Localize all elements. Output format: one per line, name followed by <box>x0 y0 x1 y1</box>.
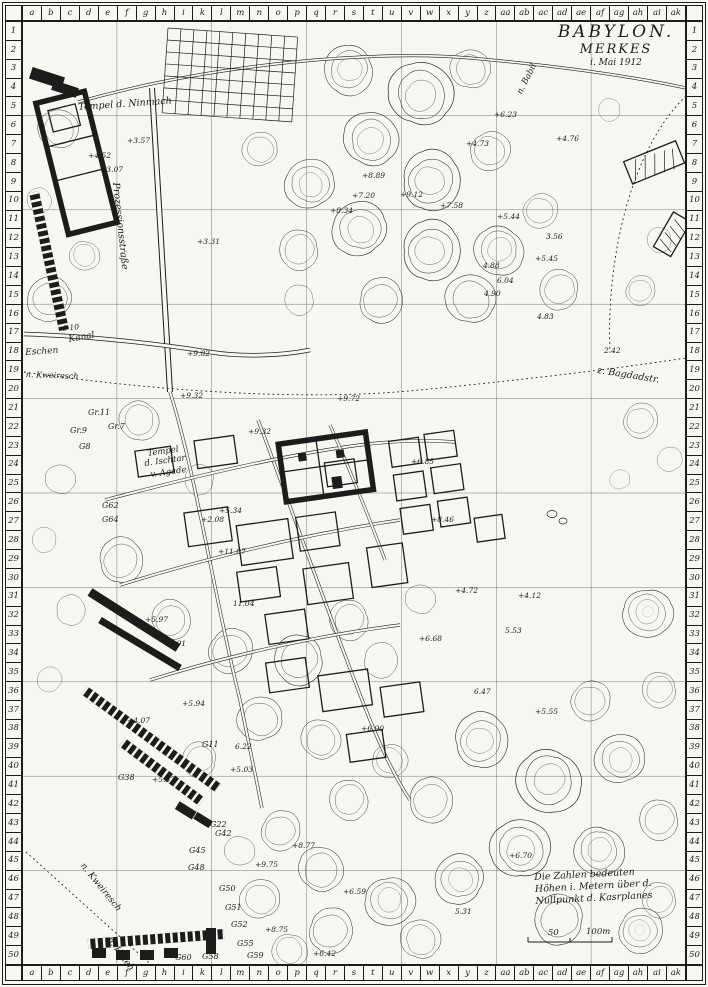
grid-number-cell: 28 <box>687 530 702 549</box>
grid-number-cell: 11 <box>687 210 702 229</box>
grid-letter-cell: t <box>363 6 382 20</box>
grid-letter-cell: a <box>23 6 41 20</box>
grid-number-cell: 35 <box>687 662 702 681</box>
spot-height: 11.04 <box>233 600 254 608</box>
grid-letter-cell: r <box>325 6 344 20</box>
grid-letter-cell: ab <box>514 966 533 980</box>
corner-cell <box>686 965 703 981</box>
spot-height: +7.58 <box>440 202 463 210</box>
scale-label-100m: 100m <box>586 928 610 937</box>
grid-number-cell: 4 <box>687 78 702 97</box>
grid-number-cell: 16 <box>6 304 21 323</box>
grid-number-cell: 18 <box>6 342 21 361</box>
scale-label-50: 50 <box>548 929 559 938</box>
grid-letter-cell: h <box>155 966 174 980</box>
grid-number-cell: 45 <box>6 851 21 870</box>
grid-number-cell: 46 <box>687 870 702 889</box>
trench-label: G38 <box>118 774 135 782</box>
grid-number-cell: 6 <box>6 115 21 134</box>
spot-height: +5.55 <box>535 708 558 716</box>
grid-letter-cell: s <box>344 966 363 980</box>
grid-letter-cell: y <box>458 6 477 20</box>
grid-number-cell: 32 <box>6 606 21 625</box>
spot-height: +5.44 <box>497 213 520 221</box>
spot-height: +6.90 <box>361 725 384 733</box>
grid-letter-cell: ai <box>647 6 666 20</box>
trench-label: G60 <box>175 954 192 962</box>
grid-number-cell: 33 <box>687 625 702 644</box>
grid-number-cell: 36 <box>6 681 21 700</box>
grid-number-cell: 39 <box>6 738 21 757</box>
trench-label: G50 <box>219 885 236 893</box>
grid-number-cell: 11 <box>6 210 21 229</box>
inner-frame <box>22 21 686 965</box>
grid-number-cell: 14 <box>6 266 21 285</box>
spot-height: 4.90 <box>484 290 501 298</box>
grid-number-cell: 4 <box>6 78 21 97</box>
spot-height: 5.31 <box>455 908 472 916</box>
grid-number-cell: 6 <box>687 115 702 134</box>
spot-height: 4.88 <box>483 262 500 270</box>
trench-label: G58 <box>202 953 219 961</box>
grid-number-cell: 19 <box>6 360 21 379</box>
trench-label: Gr.9 <box>70 427 87 435</box>
grid-number-cell: 10 <box>6 191 21 210</box>
grid-number-cell: 33 <box>6 625 21 644</box>
corner-cell <box>5 965 22 981</box>
grid-letter-cell: r <box>325 966 344 980</box>
grid-number-cell: 41 <box>687 775 702 794</box>
grid-number-cell: 5 <box>6 96 21 115</box>
grid-number-cell: 31 <box>6 587 21 606</box>
grid-number-cell: 25 <box>6 474 21 493</box>
grid-number-cell: 15 <box>687 285 702 304</box>
spot-height: +4.07 <box>127 717 150 725</box>
grid-letters-bottom: abcdefghiklmnopqrstuvwxyzaaabacadaeafaga… <box>22 965 686 981</box>
grid-letter-cell: z <box>477 966 496 980</box>
grid-letter-cell: c <box>60 6 79 20</box>
spot-height: +2.08 <box>201 516 224 524</box>
grid-number-cell: 30 <box>687 568 702 587</box>
corner-cell <box>686 5 703 21</box>
grid-number-cell: 43 <box>687 813 702 832</box>
grid-letter-cell: o <box>268 966 287 980</box>
trench-label: Gr.11 <box>88 409 110 417</box>
map-sheet: abcdefghiklmnopqrstuvwxyzaaabacadaeafaga… <box>0 0 708 987</box>
grid-number-cell: 47 <box>6 889 21 908</box>
trench-label: G55 <box>237 940 254 948</box>
grid-number-cell: 47 <box>687 889 702 908</box>
grid-number-cell: 50 <box>6 945 21 964</box>
spot-height: 6.04 <box>497 277 514 285</box>
grid-letter-cell: w <box>420 966 439 980</box>
grid-number-cell: 24 <box>687 455 702 474</box>
spot-height: +4.52 <box>88 152 111 160</box>
grid-number-cell: 7 <box>687 134 702 153</box>
map-title-main: BABYLON. <box>540 22 692 42</box>
grid-letter-cell: x <box>439 6 458 20</box>
grid-number-cell: 42 <box>687 794 702 813</box>
grid-number-cell: 40 <box>687 757 702 776</box>
grid-number-cell: 25 <box>687 474 702 493</box>
spot-height: 6.22 <box>235 743 252 751</box>
grid-number-cell: 27 <box>6 511 21 530</box>
grid-letter-cell: ac <box>533 6 552 20</box>
map-title-sub: MERKES <box>540 42 692 57</box>
grid-letter-cell: z <box>477 6 496 20</box>
corner-cell <box>5 5 22 21</box>
grid-number-cell: 35 <box>6 662 21 681</box>
spot-height: +9.32 <box>180 392 203 400</box>
grid-letter-cell: ac <box>533 966 552 980</box>
grid-letter-cell: l <box>211 6 230 20</box>
grid-number-cell: 48 <box>6 907 21 926</box>
grid-number-cell: 8 <box>687 153 702 172</box>
grid-number-cell: 10 <box>687 191 702 210</box>
grid-number-cell: 26 <box>6 492 21 511</box>
spot-height: 2.42 <box>604 347 621 355</box>
grid-number-cell: 26 <box>687 492 702 511</box>
spot-height: +8.89 <box>362 172 385 180</box>
spot-height: +3.07 <box>100 166 123 174</box>
trench-label: G59 <box>247 952 264 960</box>
grid-number-cell: 20 <box>6 379 21 398</box>
grid-letter-cell: p <box>287 966 306 980</box>
grid-number-cell: 43 <box>6 813 21 832</box>
spot-height: +8.46 <box>431 516 454 524</box>
spot-height: +9.12 <box>400 191 423 199</box>
spot-height: +8.34 <box>330 207 353 215</box>
grid-letter-cell: i <box>174 966 193 980</box>
grid-letter-cell: u <box>382 966 401 980</box>
grid-letter-cell: u <box>382 6 401 20</box>
grid-number-cell: 17 <box>687 323 702 342</box>
grid-letter-cell: ae <box>571 966 590 980</box>
spot-height: +9.82 <box>187 350 210 358</box>
grid-letters-top: abcdefghiklmnopqrstuvwxyzaaabacadaeafaga… <box>22 5 686 21</box>
grid-number-cell: 36 <box>687 681 702 700</box>
grid-number-cell: 37 <box>687 700 702 719</box>
grid-letter-cell: b <box>41 6 60 20</box>
grid-letter-cell: l <box>211 966 230 980</box>
spot-height: +9.75 <box>255 861 278 869</box>
grid-letter-cell: t <box>363 966 382 980</box>
grid-number-cell: 23 <box>6 436 21 455</box>
grid-number-cell: 5 <box>687 96 702 115</box>
grid-number-cell: 14 <box>687 266 702 285</box>
trench-label: G42 <box>215 830 232 838</box>
trench-label: G48 <box>188 864 205 872</box>
trench-label: G52 <box>231 921 248 929</box>
grid-number-cell: 46 <box>6 870 21 889</box>
grid-number-cell: 30 <box>6 568 21 587</box>
trench-label: G11 <box>202 741 219 749</box>
grid-number-cell: 13 <box>6 247 21 266</box>
grid-numbers-right: 1234567891011121314151617181920212223242… <box>686 21 703 965</box>
grid-letter-cell: o <box>268 6 287 20</box>
spot-height: +8.77 <box>292 842 315 850</box>
grid-number-cell: 21 <box>6 398 21 417</box>
spot-height: 6.47 <box>474 688 491 696</box>
grid-letter-cell: ah <box>628 966 647 980</box>
grid-number-cell: 44 <box>687 832 702 851</box>
grid-letter-cell: s <box>344 6 363 20</box>
spot-height: +3.31 <box>197 238 220 246</box>
grid-letter-cell: m <box>230 6 249 20</box>
grid-letter-cell: d <box>79 6 98 20</box>
grid-number-cell: 32 <box>687 606 702 625</box>
grid-number-cell: 28 <box>6 530 21 549</box>
spot-height: +5.03 <box>230 766 253 774</box>
grid-number-cell: 15 <box>6 285 21 304</box>
spot-height: +7.20 <box>352 192 375 200</box>
spot-height: +5.45 <box>535 255 558 263</box>
grid-letter-cell: g <box>136 966 155 980</box>
grid-letter-cell: p <box>287 6 306 20</box>
trench-label: G51 <box>225 904 242 912</box>
grid-number-cell: 31 <box>687 587 702 606</box>
spot-height: +3.57 <box>127 137 150 145</box>
grid-number-cell: 12 <box>6 228 21 247</box>
grid-number-cell: 50 <box>687 945 702 964</box>
grid-number-cell: 48 <box>687 907 702 926</box>
grid-letter-cell: h <box>155 6 174 20</box>
spot-height: +6.68 <box>419 635 442 643</box>
grid-letter-cell: m <box>230 966 249 980</box>
grid-number-cell: 49 <box>6 926 21 945</box>
grid-number-cell: 34 <box>6 643 21 662</box>
grid-numbers-left: 1234567891011121314151617181920212223242… <box>5 21 22 965</box>
grid-number-cell: 34 <box>687 643 702 662</box>
grid-letter-cell: c <box>60 966 79 980</box>
grid-letter-cell: ad <box>552 966 571 980</box>
grid-number-cell: 3 <box>6 59 21 78</box>
grid-number-cell: 38 <box>6 719 21 738</box>
spot-height: +8.75 <box>265 926 288 934</box>
grid-number-cell: 8 <box>6 153 21 172</box>
grid-number-cell: 24 <box>6 455 21 474</box>
grid-letter-cell: ak <box>666 966 685 980</box>
place-label: 6·10 <box>62 323 79 332</box>
grid-number-cell: 9 <box>687 172 702 191</box>
grid-number-cell: 39 <box>687 738 702 757</box>
trench-label: G62 <box>102 502 119 510</box>
grid-letter-cell: a <box>23 966 41 980</box>
spot-height: +6.70 <box>509 852 532 860</box>
grid-letter-cell: q <box>306 966 325 980</box>
spot-height: +4.73 <box>466 140 489 148</box>
grid-number-cell: 23 <box>687 436 702 455</box>
spot-height: +6.23 <box>494 111 517 119</box>
grid-number-cell: 9 <box>6 172 21 191</box>
grid-letter-cell: v <box>401 966 420 980</box>
grid-number-cell: 40 <box>6 757 21 776</box>
trench-label: G22 <box>210 821 227 829</box>
spot-height: +4.76 <box>556 135 579 143</box>
trench-label: G45 <box>189 847 206 855</box>
grid-letter-cell: k <box>192 966 211 980</box>
grid-number-cell: 49 <box>687 926 702 945</box>
grid-number-cell: 22 <box>6 417 21 436</box>
grid-letter-cell: i <box>174 6 193 20</box>
grid-letter-cell: e <box>98 966 117 980</box>
grid-number-cell: 29 <box>6 549 21 568</box>
grid-number-cell: 42 <box>6 794 21 813</box>
grid-letter-cell: ab <box>514 6 533 20</box>
grid-letter-cell: aa <box>495 966 514 980</box>
grid-number-cell: 38 <box>687 719 702 738</box>
grid-letter-cell: ag <box>609 966 628 980</box>
grid-letter-cell: aa <box>495 6 514 20</box>
grid-letter-cell: ah <box>628 6 647 20</box>
grid-number-cell: 21 <box>687 398 702 417</box>
grid-number-cell: 37 <box>6 700 21 719</box>
grid-letter-cell: v <box>401 6 420 20</box>
grid-number-cell: 44 <box>6 832 21 851</box>
spot-height: +5.34 <box>219 507 242 515</box>
trench-label: G64 <box>102 516 119 524</box>
grid-number-cell: 17 <box>6 323 21 342</box>
grid-number-cell: 20 <box>687 379 702 398</box>
grid-letter-cell: ae <box>571 6 590 20</box>
grid-letter-cell: ad <box>552 6 571 20</box>
grid-letter-cell: q <box>306 6 325 20</box>
spot-height: 5.53 <box>505 627 522 635</box>
grid-number-cell: 27 <box>687 511 702 530</box>
spot-height: +5.37 <box>152 776 175 784</box>
spot-height: +11.07 <box>218 548 246 556</box>
grid-number-cell: 2 <box>6 40 21 59</box>
spot-height: 4.83 <box>537 313 554 321</box>
spot-height: +4.12 <box>518 592 541 600</box>
spot-height: +6.91 <box>163 640 186 648</box>
grid-letter-cell: ag <box>609 6 628 20</box>
spot-height: +5.94 <box>182 700 205 708</box>
legend: Die Zahlen bedeuten Höhen i. Metern über… <box>534 866 653 908</box>
grid-number-cell: 19 <box>687 360 702 379</box>
grid-letter-cell: af <box>590 6 609 20</box>
grid-letter-cell: ai <box>647 966 666 980</box>
grid-number-cell: 16 <box>687 304 702 323</box>
spot-height: +5.97 <box>145 616 168 624</box>
grid-number-cell: 12 <box>687 228 702 247</box>
grid-letter-cell: ak <box>666 6 685 20</box>
spot-height: +6.59 <box>343 888 366 896</box>
grid-letter-cell: g <box>136 6 155 20</box>
grid-letter-cell: f <box>117 6 136 20</box>
spot-height: +9.32 <box>248 428 271 436</box>
grid-letter-cell: af <box>590 966 609 980</box>
grid-letter-cell: e <box>98 6 117 20</box>
map-title-date: i. Mai 1912 <box>540 58 692 68</box>
map-title: BABYLON. MERKES i. Mai 1912 <box>540 22 692 68</box>
grid-number-cell: 13 <box>687 247 702 266</box>
spot-height: 3.56 <box>546 233 563 241</box>
grid-number-cell: 18 <box>687 342 702 361</box>
grid-letter-cell: y <box>458 966 477 980</box>
grid-number-cell: 7 <box>6 134 21 153</box>
grid-number-cell: 45 <box>687 851 702 870</box>
grid-letter-cell: k <box>192 6 211 20</box>
grid-letter-cell: x <box>439 966 458 980</box>
trench-label: G8 <box>79 443 90 451</box>
spot-height: +4.72 <box>455 587 478 595</box>
spot-height: +6.42 <box>313 950 336 958</box>
grid-number-cell: 22 <box>687 417 702 436</box>
grid-number-cell: 41 <box>6 775 21 794</box>
trench-label: Gr.7 <box>108 423 125 431</box>
grid-letter-cell: b <box>41 966 60 980</box>
grid-letter-cell: d <box>79 966 98 980</box>
grid-number-cell: 29 <box>687 549 702 568</box>
grid-letter-cell: w <box>420 6 439 20</box>
grid-letter-cell: n <box>249 6 268 20</box>
spot-height: +9.72 <box>337 395 360 403</box>
grid-letter-cell: n <box>249 966 268 980</box>
spot-height: +6.85 <box>411 458 434 466</box>
grid-number-cell: 1 <box>6 22 21 40</box>
